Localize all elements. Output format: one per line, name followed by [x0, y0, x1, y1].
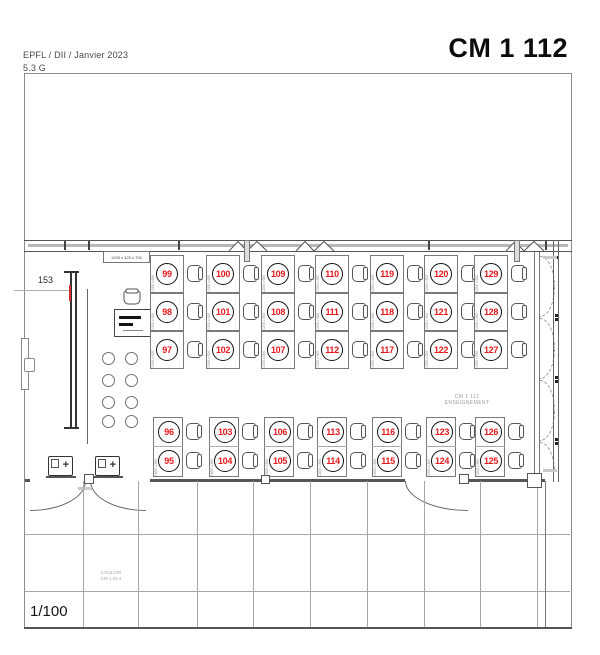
seat-number: 112 — [325, 345, 339, 355]
bin-base-line — [46, 476, 76, 478]
seat-111: 111 — [321, 301, 343, 323]
seat-number: 102 — [216, 345, 230, 355]
chair-icon — [508, 423, 522, 440]
corridor-grid-vline — [197, 481, 198, 627]
outer-wall-bottom — [24, 627, 572, 629]
door-post — [84, 474, 94, 484]
seat-123: 123 — [431, 421, 453, 443]
seat-103: 103 — [214, 421, 236, 443]
dimension-153-label: 153 — [38, 275, 53, 285]
stool-icon — [125, 352, 138, 365]
seat-101: 101 — [212, 301, 234, 323]
outer-wall-right — [571, 73, 572, 628]
seat-number: 107 — [271, 345, 285, 355]
chair-icon — [186, 452, 200, 469]
seat-108: 108 — [267, 301, 289, 323]
seat-104: 104 — [214, 450, 236, 472]
partition-wall-line — [534, 252, 535, 478]
window-vent-icon — [295, 239, 335, 251]
chair-icon — [352, 341, 366, 358]
chair-icon — [350, 452, 364, 469]
lectern-text-bar — [119, 316, 141, 319]
window-mullion-tick — [428, 241, 430, 250]
stool-icon — [102, 374, 115, 387]
chair-icon — [459, 452, 473, 469]
seat-107: 107 — [267, 339, 289, 361]
bin-base-line — [93, 476, 123, 478]
micro-label — [78, 487, 92, 490]
seat-number: 122 — [434, 345, 448, 355]
seat-number: 106 — [273, 427, 287, 437]
chair-icon — [298, 341, 312, 358]
corridor-grid-vline — [480, 481, 481, 627]
corridor-grid-vline — [83, 481, 84, 627]
chair-icon — [407, 265, 421, 282]
wall-stub — [514, 240, 520, 262]
chair-icon — [352, 265, 366, 282]
seat-number: 99 — [162, 269, 171, 279]
seat-96: 96 — [158, 421, 180, 443]
projection-screen-rail — [87, 289, 88, 444]
lectern-size-label: 1200 x 420 x 700 — [103, 251, 150, 263]
seat-number: 97 — [162, 345, 171, 355]
chair-icon — [242, 423, 256, 440]
page-title: CM 1 112 — [378, 33, 568, 64]
seat-number: 104 — [218, 456, 232, 466]
stool-icon — [102, 396, 115, 409]
seat-number: 123 — [435, 427, 449, 437]
chair-icon — [511, 303, 525, 320]
desk-divider — [153, 446, 183, 447]
corridor-grid-vline — [537, 481, 538, 627]
seat-number: 95 — [164, 456, 173, 466]
right-wall-line — [553, 240, 554, 482]
desk-divider — [426, 446, 456, 447]
seat-98: 98 — [156, 301, 178, 323]
right-wall-line — [558, 240, 559, 482]
chair-icon — [352, 303, 366, 320]
seat-number: 115 — [381, 456, 395, 466]
chair-icon — [187, 303, 201, 320]
chair-icon — [243, 265, 257, 282]
bin: + — [95, 456, 120, 476]
seat-124: 124 — [431, 450, 453, 472]
seat-128: 128 — [480, 301, 502, 323]
seat-number: 101 — [216, 307, 230, 317]
chair-icon — [187, 265, 201, 282]
chair-icon — [511, 341, 525, 358]
outer-wall-top — [24, 73, 572, 74]
seat-number: 109 — [271, 269, 285, 279]
door-swing-arc — [30, 481, 86, 511]
dimension-line — [14, 290, 70, 291]
chair-icon — [461, 341, 475, 358]
seat-95: 95 — [158, 450, 180, 472]
plus-icon: + — [63, 459, 69, 471]
seat-126: 126 — [480, 421, 502, 443]
seat-number: 118 — [380, 307, 394, 317]
desk-divider — [264, 446, 294, 447]
seat-number: 119 — [380, 269, 394, 279]
lectern-text-bar — [119, 323, 133, 326]
seat-number: 127 — [484, 345, 498, 355]
seat-115: 115 — [377, 450, 399, 472]
seat-114: 114 — [322, 450, 344, 472]
seat-112: 112 — [321, 339, 343, 361]
seat-127: 127 — [480, 339, 502, 361]
corridor-grid-vline — [424, 481, 425, 627]
wall-stub — [244, 240, 250, 262]
seat-number: 111 — [325, 307, 338, 317]
seat-116: 116 — [377, 421, 399, 443]
corridor-label: COULOIR CM 1.04.4 — [81, 570, 141, 581]
seat-106: 106 — [269, 421, 291, 443]
seat-129: 129 — [480, 263, 502, 285]
micro-label — [543, 256, 557, 259]
bin-compartment — [98, 459, 106, 468]
corridor-right-line — [545, 481, 546, 627]
seat-number: 108 — [271, 307, 285, 317]
seat-99: 99 — [156, 263, 178, 285]
chair-icon — [187, 341, 201, 358]
lectern-base-line — [123, 330, 143, 331]
chair-icon — [297, 423, 311, 440]
seat-number: 129 — [484, 269, 498, 279]
door-post — [459, 474, 469, 484]
corridor-grid-vline — [367, 481, 368, 627]
seat-number: 126 — [484, 427, 498, 437]
corridor-grid-vline — [253, 481, 254, 627]
seat-120: 120 — [430, 263, 452, 285]
window-mullion-tick — [88, 241, 90, 250]
blackboard-rail — [75, 272, 77, 428]
corridor-label-line2: CM 1.04.4 — [81, 576, 141, 582]
stool-icon — [102, 352, 115, 365]
room-label-line2: ENSEIGNEMENT — [427, 400, 507, 406]
seat-number: 110 — [325, 269, 339, 279]
corridor-grid-hline — [25, 591, 570, 592]
door-post — [261, 475, 270, 484]
seat-number: 125 — [484, 456, 498, 466]
bin: + — [48, 456, 73, 476]
seat-number: 96 — [164, 427, 173, 437]
stool-icon — [125, 415, 138, 428]
seat-109: 109 — [267, 263, 289, 285]
chair-icon — [298, 265, 312, 282]
chair-icon — [461, 303, 475, 320]
desk-divider — [317, 446, 347, 447]
chair-icon — [407, 341, 421, 358]
blackboard-cap-top — [64, 271, 79, 273]
micro-label — [543, 469, 557, 472]
seat-number: 105 — [273, 456, 287, 466]
seat-number: 100 — [216, 269, 230, 279]
seat-number: 124 — [435, 456, 449, 466]
stool-icon — [125, 396, 138, 409]
header-org-line: EPFL / DII / Janvier 2023 — [23, 50, 128, 60]
seat-number: 120 — [434, 269, 448, 279]
window-mullion-tick — [545, 241, 547, 250]
chair-icon — [508, 452, 522, 469]
dimension-red-tick — [69, 285, 71, 301]
seat-number: 128 — [484, 307, 498, 317]
chair-icon — [405, 452, 419, 469]
stool-icon — [102, 415, 115, 428]
scale-label: 1/100 — [30, 603, 68, 620]
seat-110: 110 — [321, 263, 343, 285]
corridor-grid-vline — [310, 481, 311, 627]
bin-compartment — [51, 459, 59, 468]
left-door-handle — [24, 358, 35, 372]
stool-icon — [125, 374, 138, 387]
seat-number: 103 — [218, 427, 232, 437]
chair-icon — [461, 265, 475, 282]
seat-97: 97 — [156, 339, 178, 361]
seat-100: 100 — [212, 263, 234, 285]
lectern — [114, 309, 151, 337]
desk-divider — [209, 446, 239, 447]
seat-number: 98 — [162, 307, 171, 317]
chair-icon — [350, 423, 364, 440]
window-mullion-tick — [178, 241, 180, 250]
seat-119: 119 — [376, 263, 398, 285]
seat-102: 102 — [212, 339, 234, 361]
chair-icon — [407, 303, 421, 320]
seat-number: 113 — [326, 427, 340, 437]
floor-plan-page: EPFL / DII / Janvier 2023 5.3 G CM 1 112… — [0, 0, 600, 655]
corridor-grid-vline — [138, 481, 139, 627]
door-swing-arc — [405, 481, 468, 511]
window-mullion-tick — [64, 241, 66, 250]
seat-105: 105 — [269, 450, 291, 472]
chair-icon — [242, 452, 256, 469]
blackboard-cap-bottom — [64, 427, 79, 429]
chair-icon — [297, 452, 311, 469]
teacher-chair-icon — [124, 291, 141, 305]
plus-icon: + — [110, 459, 116, 471]
desk-divider — [372, 446, 402, 447]
seat-118: 118 — [376, 301, 398, 323]
seat-121: 121 — [430, 301, 452, 323]
chair-icon — [511, 265, 525, 282]
seat-number: 114 — [326, 456, 340, 466]
door-post — [527, 473, 542, 488]
chair-icon — [405, 423, 419, 440]
chair-icon — [243, 341, 257, 358]
seat-117: 117 — [376, 339, 398, 361]
seat-113: 113 — [322, 421, 344, 443]
seat-125: 125 — [480, 450, 502, 472]
desk-divider — [475, 446, 505, 447]
seat-number: 116 — [381, 427, 395, 437]
header-floor-line: 5.3 G — [23, 63, 46, 73]
seat-number: 121 — [434, 307, 448, 317]
corridor-grid-hline — [25, 534, 570, 535]
seat-122: 122 — [430, 339, 452, 361]
window-vent-icon — [505, 239, 545, 251]
chair-icon — [186, 423, 200, 440]
seat-number: 117 — [380, 345, 394, 355]
room-label: CM 1 112 ENSEIGNEMENT — [427, 394, 507, 406]
chair-icon — [459, 423, 473, 440]
chair-icon — [298, 303, 312, 320]
chair-icon — [243, 303, 257, 320]
